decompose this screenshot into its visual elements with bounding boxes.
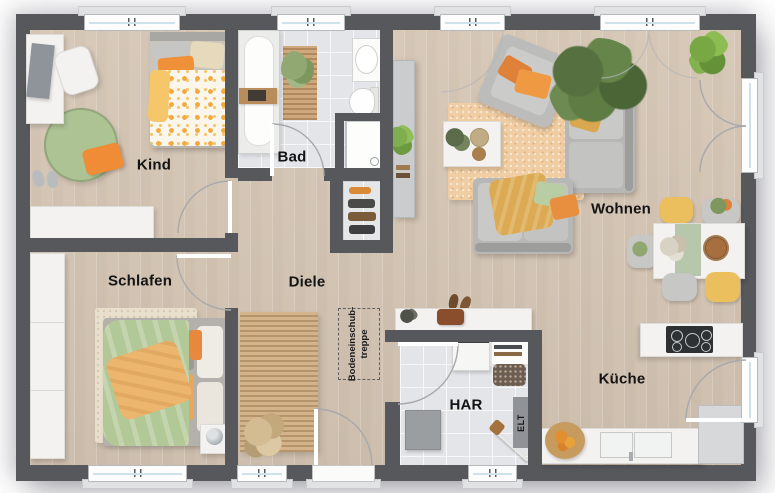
shelf-books (396, 165, 410, 170)
pillow (189, 41, 225, 70)
sideboard-kind (30, 206, 154, 240)
wall-har-kueche (528, 330, 542, 465)
window-kind (84, 14, 180, 31)
wall-shower-stub-h (335, 113, 380, 121)
washbasin-bowl (355, 45, 378, 74)
window-glass (605, 22, 695, 24)
shoe-cabinet (343, 181, 382, 242)
toilet (349, 86, 379, 116)
attic-label-line1: Bodeneinschub- (347, 307, 358, 381)
burner (671, 330, 683, 342)
window-har (468, 465, 517, 482)
room-label-bad: Bad (278, 149, 307, 166)
shelf-books (396, 173, 410, 178)
floor-plan: Bodeneinschub- treppe ELT (0, 0, 775, 493)
attic-hatch-label: Bodeneinschub- treppe (347, 307, 371, 381)
attic-label-line2: treppe (359, 329, 370, 358)
shoes-brown (348, 212, 376, 221)
pillow-orange-small (190, 330, 202, 360)
shoes-black (349, 225, 375, 234)
toilet-bowl (349, 88, 375, 116)
shoes-orange (349, 187, 371, 194)
room-label-har: HAR (449, 397, 482, 414)
laundry-basket (493, 364, 526, 386)
decor-bowl-small (472, 147, 486, 161)
laundry-item (494, 352, 522, 356)
wall-bad-wohnen (380, 30, 393, 253)
table-lamp (206, 428, 223, 445)
window-wohnen-2 (600, 14, 700, 31)
attic-hatch: Bodeneinschub- treppe (338, 308, 380, 380)
room-label-kind: Kind (137, 157, 171, 174)
burner (701, 342, 711, 352)
fridge-unit (698, 405, 744, 464)
towel-green (281, 50, 314, 88)
wall-schlafen-diele (225, 308, 238, 465)
window-glass (749, 83, 751, 168)
room-label-kueche: Küche (599, 371, 646, 388)
elt-panel: ELT (513, 397, 528, 448)
wall-bad-south-right (324, 168, 380, 181)
window-glass (282, 22, 340, 24)
napkin-green (630, 240, 652, 260)
window-schlafen (88, 465, 187, 482)
napkin-decor (708, 196, 734, 218)
window-glass (89, 22, 175, 24)
dining-chair-yellow (705, 272, 740, 302)
wall-kind-diele (225, 30, 238, 178)
sink-basin (634, 432, 672, 458)
fruit-bowl-table (703, 235, 729, 261)
dining-chair-gray (662, 273, 697, 301)
shoes-dark (348, 199, 375, 208)
window-glass (445, 22, 500, 24)
table-plant (444, 127, 471, 153)
burner (701, 330, 712, 341)
table-flowers (658, 234, 690, 262)
wardrobe (30, 253, 65, 459)
window-glass (473, 473, 512, 475)
pampas-plant (240, 412, 292, 462)
bench-decor (398, 308, 418, 326)
wardrobe-divider (31, 390, 64, 391)
monstera-plant (548, 38, 648, 133)
entrance-door (312, 465, 375, 482)
sofa-cushion (569, 142, 623, 188)
dining-chair-yellow (660, 197, 693, 223)
fruit-bowl (545, 422, 585, 459)
window-bad (277, 14, 345, 31)
room-label-diele: Diele (289, 274, 326, 291)
shower-drain (370, 157, 379, 166)
faucet (629, 452, 633, 461)
cooktop (666, 326, 713, 353)
kitchen-back-door (741, 357, 758, 423)
wall-niche-bottom (330, 240, 393, 253)
storage-box (405, 410, 441, 450)
wardrobe-divider (31, 322, 64, 323)
wall-har-west (385, 402, 400, 465)
bed-headboard (150, 32, 228, 41)
wall-kind-schlafen (16, 238, 238, 252)
wall-har-north (385, 330, 540, 342)
decor-bowl (470, 128, 489, 147)
wall-bad-south-left (238, 168, 272, 181)
caddy-book (248, 90, 266, 101)
window-wohnen-1 (440, 14, 505, 31)
wall-niche-left (330, 181, 343, 240)
sofa-backrest (475, 243, 571, 252)
bag-brown (437, 309, 464, 325)
burner (672, 342, 682, 352)
elt-label: ELT (516, 414, 526, 432)
corner-plant (688, 30, 730, 78)
terrace-double-door (741, 78, 758, 173)
laundry-item (494, 345, 522, 349)
wall-shower-stub-v (335, 121, 344, 168)
room-label-wohnen: Wohnen (591, 201, 651, 218)
window-glass (93, 473, 182, 475)
blanket-fold (148, 70, 171, 123)
window-diele (237, 465, 287, 482)
window-glass (242, 473, 282, 475)
room-label-schlafen: Schlafen (108, 273, 172, 290)
burner (685, 333, 700, 348)
window-glass (749, 362, 751, 418)
